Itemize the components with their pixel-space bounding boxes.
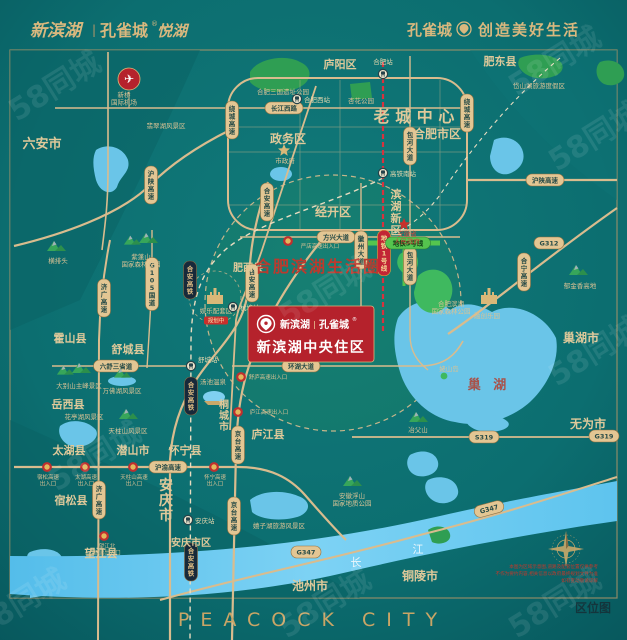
region-label: 安庆市 bbox=[159, 477, 173, 524]
header-logo-sep: | bbox=[92, 23, 96, 37]
region-label: 江 bbox=[413, 543, 424, 556]
road-pill: 合宁高速 bbox=[518, 253, 531, 291]
region-label: 舒城县 bbox=[112, 342, 145, 356]
poi-label: 汤池温泉 bbox=[200, 377, 227, 386]
exit-label: 舒庐高速出入口 bbox=[249, 373, 288, 381]
svg-text:方兴大道: 方兴大道 bbox=[323, 232, 350, 241]
svg-text:京台高速: 京台高速 bbox=[235, 429, 242, 461]
region-label: 无为市 bbox=[569, 416, 606, 431]
svg-text:G319: G319 bbox=[595, 432, 614, 440]
svg-text:✈: ✈ bbox=[124, 72, 134, 86]
poi-label: 万佛湖风景区 bbox=[103, 386, 143, 395]
road-pill: 合安高铁 bbox=[185, 377, 198, 415]
region-label: 安庆市区 bbox=[171, 536, 211, 549]
header-logo-brand: 孔雀城 bbox=[100, 21, 148, 40]
region-label: 庐江县 bbox=[252, 427, 285, 441]
svg-text:合宁高速: 合宁高速 bbox=[520, 256, 528, 288]
region-label: 老 城 中 心 bbox=[373, 107, 455, 126]
region-label: 怀宁县 bbox=[169, 443, 202, 457]
poi: 姥山岛 bbox=[439, 364, 459, 373]
region-label: 经开区 bbox=[315, 204, 351, 219]
exit-interchange-icon bbox=[237, 373, 245, 381]
region-label: 肥东县 bbox=[484, 54, 517, 68]
road-pill: 京台高速 bbox=[228, 497, 241, 535]
road-pill: 合安高铁 bbox=[184, 261, 197, 299]
header-logo-name: 新滨湖 bbox=[30, 21, 84, 41]
location-map-poster: 长江西路绕城高速绕城高速沪陕高速沪陕高速合宁高速G312合安高速合安高速京台高速… bbox=[0, 0, 627, 640]
exit-interchange-icon bbox=[284, 237, 292, 245]
railway-station: 安庆站 bbox=[183, 515, 215, 525]
exit-label: 天柱山高速 bbox=[120, 473, 148, 481]
road-pill: S319 bbox=[469, 431, 499, 443]
road-pill: 方兴大道 bbox=[317, 231, 355, 243]
svg-text:环湖大道: 环湖大道 bbox=[288, 361, 315, 370]
poi-label: 人民政府 bbox=[394, 237, 421, 246]
station-label: 舒城站 bbox=[198, 355, 218, 364]
svg-text:济广高速: 济广高速 bbox=[96, 484, 103, 516]
region-label: 巢 湖 bbox=[467, 377, 511, 393]
poi-label: 花亭湖风景区 bbox=[65, 412, 105, 421]
svg-text:京台高速: 京台高速 bbox=[231, 500, 238, 532]
exit-interchange-icon bbox=[234, 408, 242, 416]
exit-label: 严店高速出入口 bbox=[301, 242, 340, 250]
project-title: 新滨湖中央住区 bbox=[257, 339, 366, 356]
road-pill: G312 bbox=[534, 237, 564, 249]
region-label: 铜陵市 bbox=[402, 568, 438, 583]
svg-text:沪渝高速: 沪渝高速 bbox=[155, 462, 182, 471]
poi-label: 融创乐园 bbox=[474, 311, 500, 320]
svg-text:绕城高速: 绕城高速 bbox=[229, 104, 236, 136]
zongyang-lakes-1 bbox=[407, 451, 438, 476]
svg-text:合安高铁: 合安高铁 bbox=[187, 546, 195, 578]
exit-label: 怀宁高速 bbox=[204, 473, 227, 481]
region-label: 六安市 bbox=[22, 136, 61, 152]
expressway-exit: 舒庐高速出入口 bbox=[237, 373, 287, 381]
poi-label: 大别山主峰景区 bbox=[56, 381, 102, 390]
exit-interchange-icon bbox=[210, 463, 218, 471]
station-label: 合肥站 bbox=[373, 57, 393, 66]
project-logo-brand: 孔雀城 bbox=[319, 318, 349, 331]
poi-label: 杏花公园 bbox=[348, 96, 374, 105]
region-label: 望江县 bbox=[85, 546, 118, 560]
road-pill: 绕城高速 bbox=[461, 94, 474, 132]
laoshan-island bbox=[441, 373, 448, 380]
poi-label: 国家地质公园 bbox=[333, 499, 372, 508]
poi-sub-label: 规划中 bbox=[208, 317, 225, 325]
poi-label: 郁金香高地 bbox=[564, 281, 597, 290]
map-canvas: 长江西路绕城高速绕城高速沪陕高速沪陕高速合宁高速G312合安高速合安高速京台高速… bbox=[0, 0, 627, 640]
svg-text:G312: G312 bbox=[540, 239, 559, 247]
exit-label: 出入口 bbox=[207, 480, 224, 488]
svg-text:G347: G347 bbox=[297, 548, 316, 556]
railway-station: 合肥西站 bbox=[292, 94, 330, 104]
poi-label: 合肥三国遗址公园 bbox=[257, 87, 309, 96]
poi-label: 嬉子湖旅游风景区 bbox=[253, 521, 306, 530]
region-label: 霍山县 bbox=[54, 331, 87, 345]
road-pill: G319 bbox=[589, 430, 619, 442]
road-pill: 京台高速 bbox=[232, 426, 245, 464]
svg-text:长江西路: 长江西路 bbox=[271, 103, 298, 112]
region-label: 滨湖新区 bbox=[391, 187, 402, 237]
project-logo-reg: ® bbox=[352, 316, 357, 323]
exit-interchange-icon bbox=[100, 532, 108, 540]
exit-label: 出入口 bbox=[126, 480, 143, 488]
poi: 合肥三国遗址公园 bbox=[257, 87, 309, 96]
exit-interchange-icon bbox=[129, 463, 137, 471]
svg-text:包河大道: 包河大道 bbox=[407, 250, 414, 282]
poi-label: 市政府 bbox=[275, 156, 295, 165]
svg-text:合安高铁: 合安高铁 bbox=[187, 380, 195, 412]
svg-text:绕城高速: 绕城高速 bbox=[464, 97, 471, 129]
poi-label: 冶父山 bbox=[408, 425, 428, 434]
region-label: 合肥市区 bbox=[413, 126, 461, 141]
road-pill: 合安高速 bbox=[261, 183, 274, 221]
poi-label: 国际机场 bbox=[111, 98, 138, 107]
station-label: 安庆站 bbox=[195, 516, 215, 525]
project-logo-sep: | bbox=[313, 320, 316, 329]
station-label: 高铁南站 bbox=[390, 169, 417, 178]
road-pill: 绕城高速 bbox=[226, 101, 239, 139]
svg-text:沪陕高速: 沪陕高速 bbox=[148, 169, 155, 201]
poi: 杏花公园 bbox=[348, 96, 374, 105]
poi-label: 国家森林公园 bbox=[122, 260, 161, 269]
road-pill: 包河大道 bbox=[404, 247, 417, 285]
station-label: 合肥西站 bbox=[304, 95, 331, 104]
svg-text:济广高速: 济广高速 bbox=[101, 282, 108, 314]
poi: 翡翠湖风景区 bbox=[147, 121, 187, 130]
region-label: 桐城市 bbox=[219, 398, 229, 433]
svg-text:沪陕高速: 沪陕高速 bbox=[532, 175, 559, 184]
poi-label: 横排头 bbox=[48, 256, 68, 265]
poi: 嬉子湖旅游风景区 bbox=[253, 521, 306, 530]
road-pill: 沪渝高速 bbox=[149, 461, 187, 473]
poi-label: 翡翠湖风景区 bbox=[147, 121, 187, 130]
poi-label: 娱乐配套区 bbox=[200, 306, 233, 315]
svg-text:合安高铁: 合安高铁 bbox=[186, 264, 194, 296]
region-label: 庐阳区 bbox=[324, 57, 357, 71]
road-pill: 六舒三省道 bbox=[94, 360, 139, 372]
svg-text:S319: S319 bbox=[475, 433, 494, 441]
header-slogan-brand: 孔雀城 bbox=[407, 21, 452, 39]
poi: 花亭湖风景区 bbox=[65, 412, 105, 421]
svg-text:合安高速: 合安高速 bbox=[263, 186, 271, 218]
road-pill: G347 bbox=[291, 546, 321, 558]
road-pill: 济广高速 bbox=[93, 481, 106, 519]
road-pill: 沪陕高速 bbox=[145, 166, 158, 204]
region-label: 岳西县 bbox=[52, 397, 85, 411]
svg-text:六舒三省道: 六舒三省道 bbox=[100, 361, 133, 370]
poi-label: 姥山岛 bbox=[439, 364, 459, 373]
header-logo-sub: 悦湖 bbox=[157, 22, 190, 40]
poi-label: 国家森林公园 bbox=[432, 307, 471, 316]
region-label: 政务区 bbox=[270, 131, 306, 146]
road-pill: 济广高速 bbox=[98, 279, 111, 317]
exit-label: 庐江高速出入口 bbox=[250, 408, 289, 416]
railway-station: 高铁南站 bbox=[378, 168, 416, 178]
